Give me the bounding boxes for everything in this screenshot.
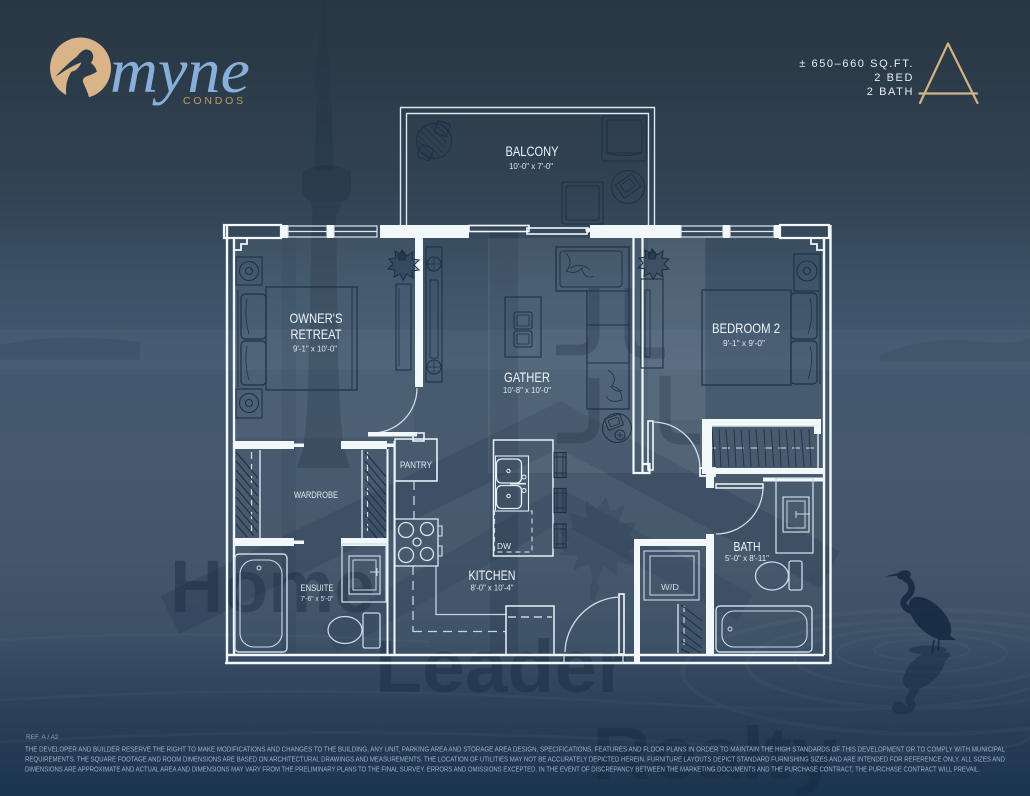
svg-text:DW: DW bbox=[497, 541, 511, 551]
svg-text:GATHER: GATHER bbox=[504, 369, 550, 385]
svg-text:9'-1" x 10'-0": 9'-1" x 10'-0" bbox=[293, 344, 337, 354]
svg-text:KITCHEN: KITCHEN bbox=[469, 567, 516, 583]
svg-text:9'-1" x 9'-0": 9'-1" x 9'-0" bbox=[723, 338, 765, 348]
svg-text:BEDROOM 2: BEDROOM 2 bbox=[712, 320, 780, 336]
svg-text:BATH: BATH bbox=[734, 539, 761, 554]
svg-text:DIMENSIONS ARE APPROXIMATE AND: DIMENSIONS ARE APPROXIMATE AND ACTUAL AR… bbox=[25, 767, 980, 774]
svg-text:CONDOS: CONDOS bbox=[183, 95, 246, 107]
svg-text:7'-6" x 5'-0": 7'-6" x 5'-0" bbox=[301, 596, 334, 603]
svg-text:RETREAT: RETREAT bbox=[291, 326, 342, 342]
svg-text:REF. A / A2: REF. A / A2 bbox=[26, 734, 59, 741]
svg-text:W/D: W/D bbox=[661, 582, 679, 592]
svg-text:OWNER'S: OWNER'S bbox=[290, 310, 343, 326]
svg-text:REQUIREMENTS. THE SQUARE FOOTA: REQUIREMENTS. THE SQUARE FOOTAGE AND ROO… bbox=[25, 757, 1005, 764]
svg-text:8'-0" x 10'-4": 8'-0" x 10'-4" bbox=[471, 583, 514, 593]
svg-text:ENSUITE: ENSUITE bbox=[301, 583, 334, 594]
svg-text:5'-0" x 8'-11": 5'-0" x 8'-11" bbox=[725, 553, 769, 563]
svg-text:WARDROBE: WARDROBE bbox=[294, 490, 338, 501]
svg-text:2 BATH: 2 BATH bbox=[867, 86, 914, 98]
svg-text:± 650–660 SQ.FT.: ± 650–660 SQ.FT. bbox=[799, 58, 914, 70]
svg-text:10'-0" x 7'-0": 10'-0" x 7'-0" bbox=[509, 161, 553, 171]
svg-text:THE DEVELOPER AND BUILDER RESE: THE DEVELOPER AND BUILDER RESERVE THE RI… bbox=[25, 747, 1005, 754]
svg-text:2 BED: 2 BED bbox=[874, 72, 914, 84]
svg-text:PANTRY: PANTRY bbox=[400, 460, 433, 471]
svg-text:BALCONY: BALCONY bbox=[506, 143, 560, 159]
svg-text:10'-8" x 10'-0": 10'-8" x 10'-0" bbox=[503, 385, 551, 395]
